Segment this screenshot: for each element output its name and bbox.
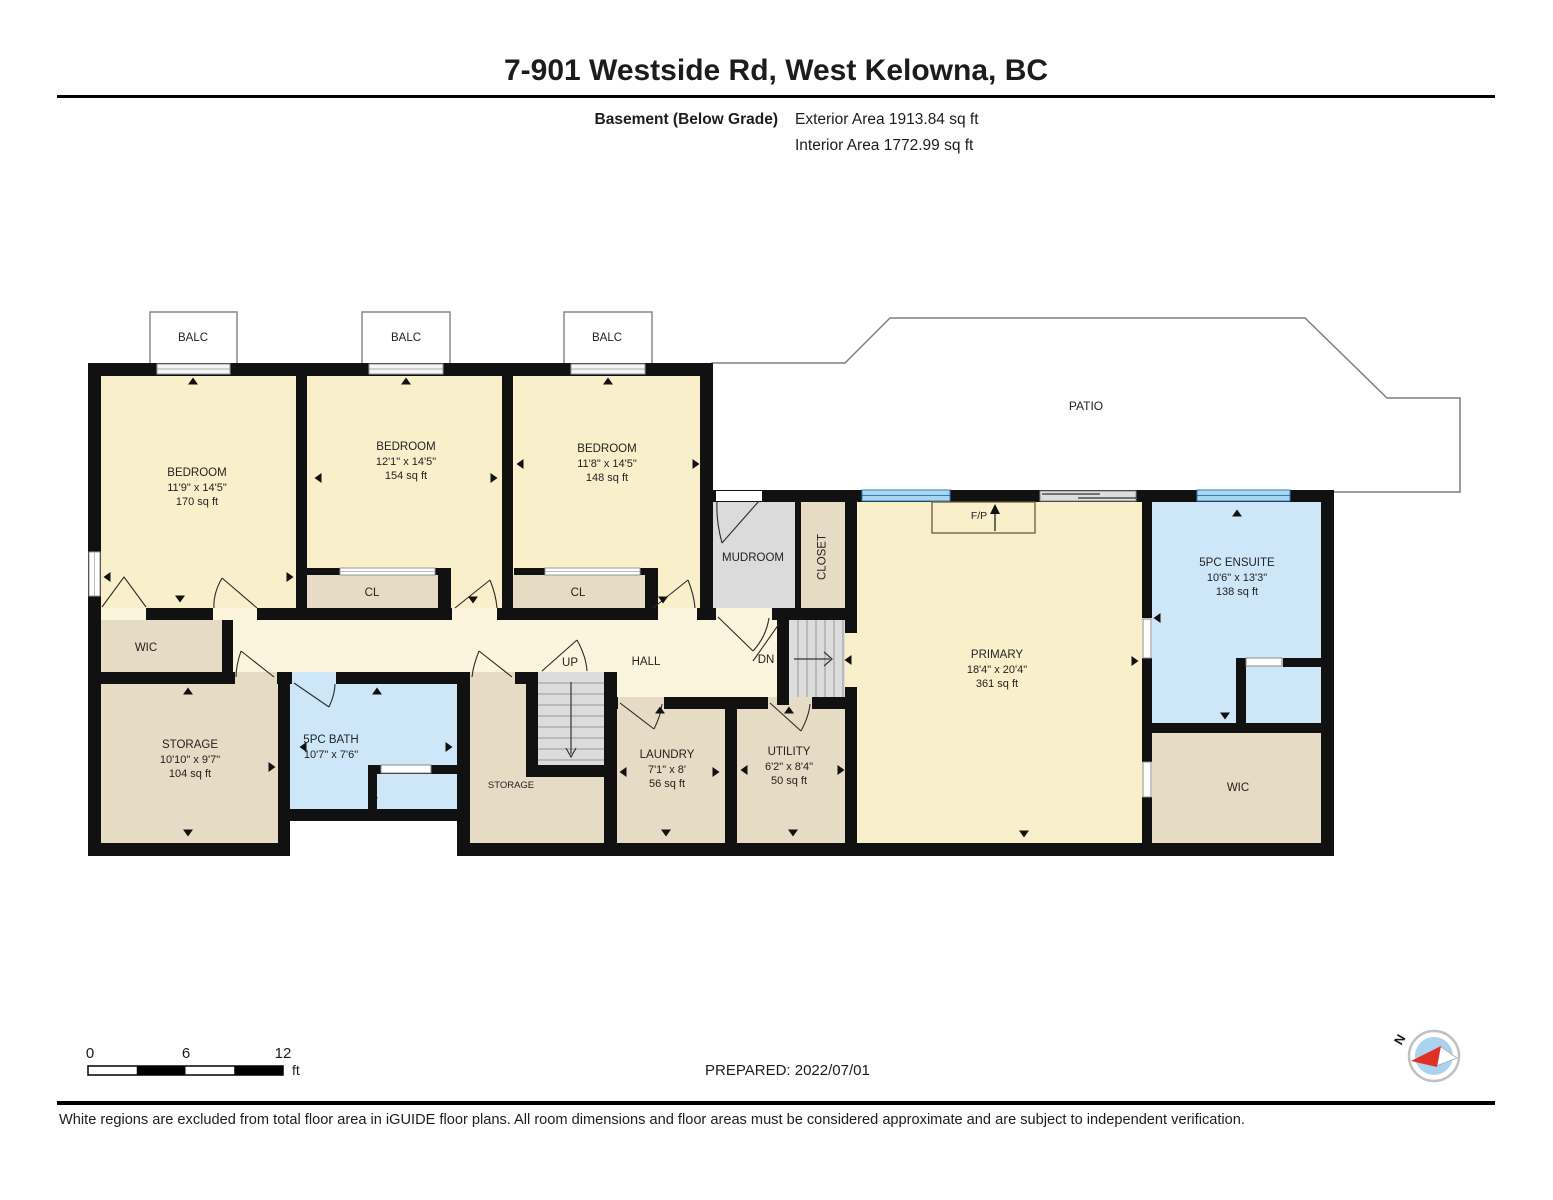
room-label-cl-2: CL <box>571 586 586 601</box>
room-label-laundry: LAUNDRY 7'1" x 8' 56 sq ft <box>640 748 695 791</box>
room-label-wic-right: WIC <box>1227 781 1249 796</box>
room-label-closet: CLOSET <box>816 534 831 580</box>
floor-plan-canvas <box>0 0 1553 1200</box>
door-wic-right <box>1143 762 1151 797</box>
disclaimer-text: White regions are excluded from total fl… <box>59 1112 1245 1128</box>
room-fill-storage-2 <box>470 684 526 843</box>
room-label-fireplace: F/P <box>971 510 987 523</box>
sliding-door-patio <box>1040 491 1136 501</box>
footer-divider <box>57 1101 1495 1105</box>
room-label-bedroom-2: BEDROOM 12'1" x 14'5" 154 sq ft <box>376 440 436 483</box>
room-label-balc-3: BALC <box>592 331 622 346</box>
room-label-dn: DN <box>758 653 775 668</box>
scale-unit: ft <box>292 1062 300 1078</box>
room-label-bedroom-3: BEDROOM 11'8" x 14'5" 148 sq ft <box>577 442 637 485</box>
scale-label-12: 12 <box>275 1045 292 1062</box>
door-ensuite <box>1143 619 1151 658</box>
room-label-bedroom-1: BEDROOM 11'9" x 14'5" 170 sq ft <box>167 466 227 509</box>
pocket-door-bath <box>381 765 431 773</box>
prepared-date: PREPARED: 2022/07/01 <box>705 1062 870 1079</box>
room-label-wic-left: WIC <box>135 641 157 656</box>
room-fill-wic-left <box>101 620 222 672</box>
scale-bar <box>88 1066 283 1075</box>
room-label-patio: PATIO <box>1069 399 1103 414</box>
room-label-storage-2: STORAGE <box>488 780 534 792</box>
mudroom-entry-gap <box>716 491 762 501</box>
room-label-balc-1: BALC <box>178 331 208 346</box>
pocket-door-ensuite <box>1246 658 1282 666</box>
interior-area: Interior Area 1772.99 sq ft <box>795 137 973 155</box>
title-divider <box>57 95 1495 98</box>
page-title: 7-901 Westside Rd, West Kelowna, BC <box>504 54 1048 88</box>
room-label-up: UP <box>562 656 578 671</box>
floor-plan-page: 7-901 Westside Rd, West Kelowna, BC Base… <box>0 0 1553 1200</box>
room-label-ensuite: 5PC ENSUITE 10'6" x 13'3" 138 sq ft <box>1199 556 1274 599</box>
room-label-primary: PRIMARY 18'4" x 20'4" 361 sq ft <box>967 648 1027 691</box>
room-label-utility: UTILITY 6'2" x 8'4" 50 sq ft <box>765 745 813 788</box>
scale-label-6: 6 <box>182 1045 190 1062</box>
scale-label-0: 0 <box>86 1045 94 1062</box>
floor-label: Basement (Below Grade) <box>595 111 778 129</box>
room-label-hall: HALL <box>632 655 661 670</box>
room-label-storage-1: STORAGE 10'10" x 9'7" 104 sq ft <box>160 738 220 781</box>
room-label-bath: 5PC BATH 10'7" x 7'6" <box>303 733 358 762</box>
exterior-area: Exterior Area 1913.84 sq ft <box>795 111 979 129</box>
compass-icon <box>1409 1031 1459 1081</box>
room-label-balc-2: BALC <box>391 331 421 346</box>
room-label-cl-1: CL <box>365 586 380 601</box>
room-label-mudroom: MUDROOM <box>722 551 784 566</box>
